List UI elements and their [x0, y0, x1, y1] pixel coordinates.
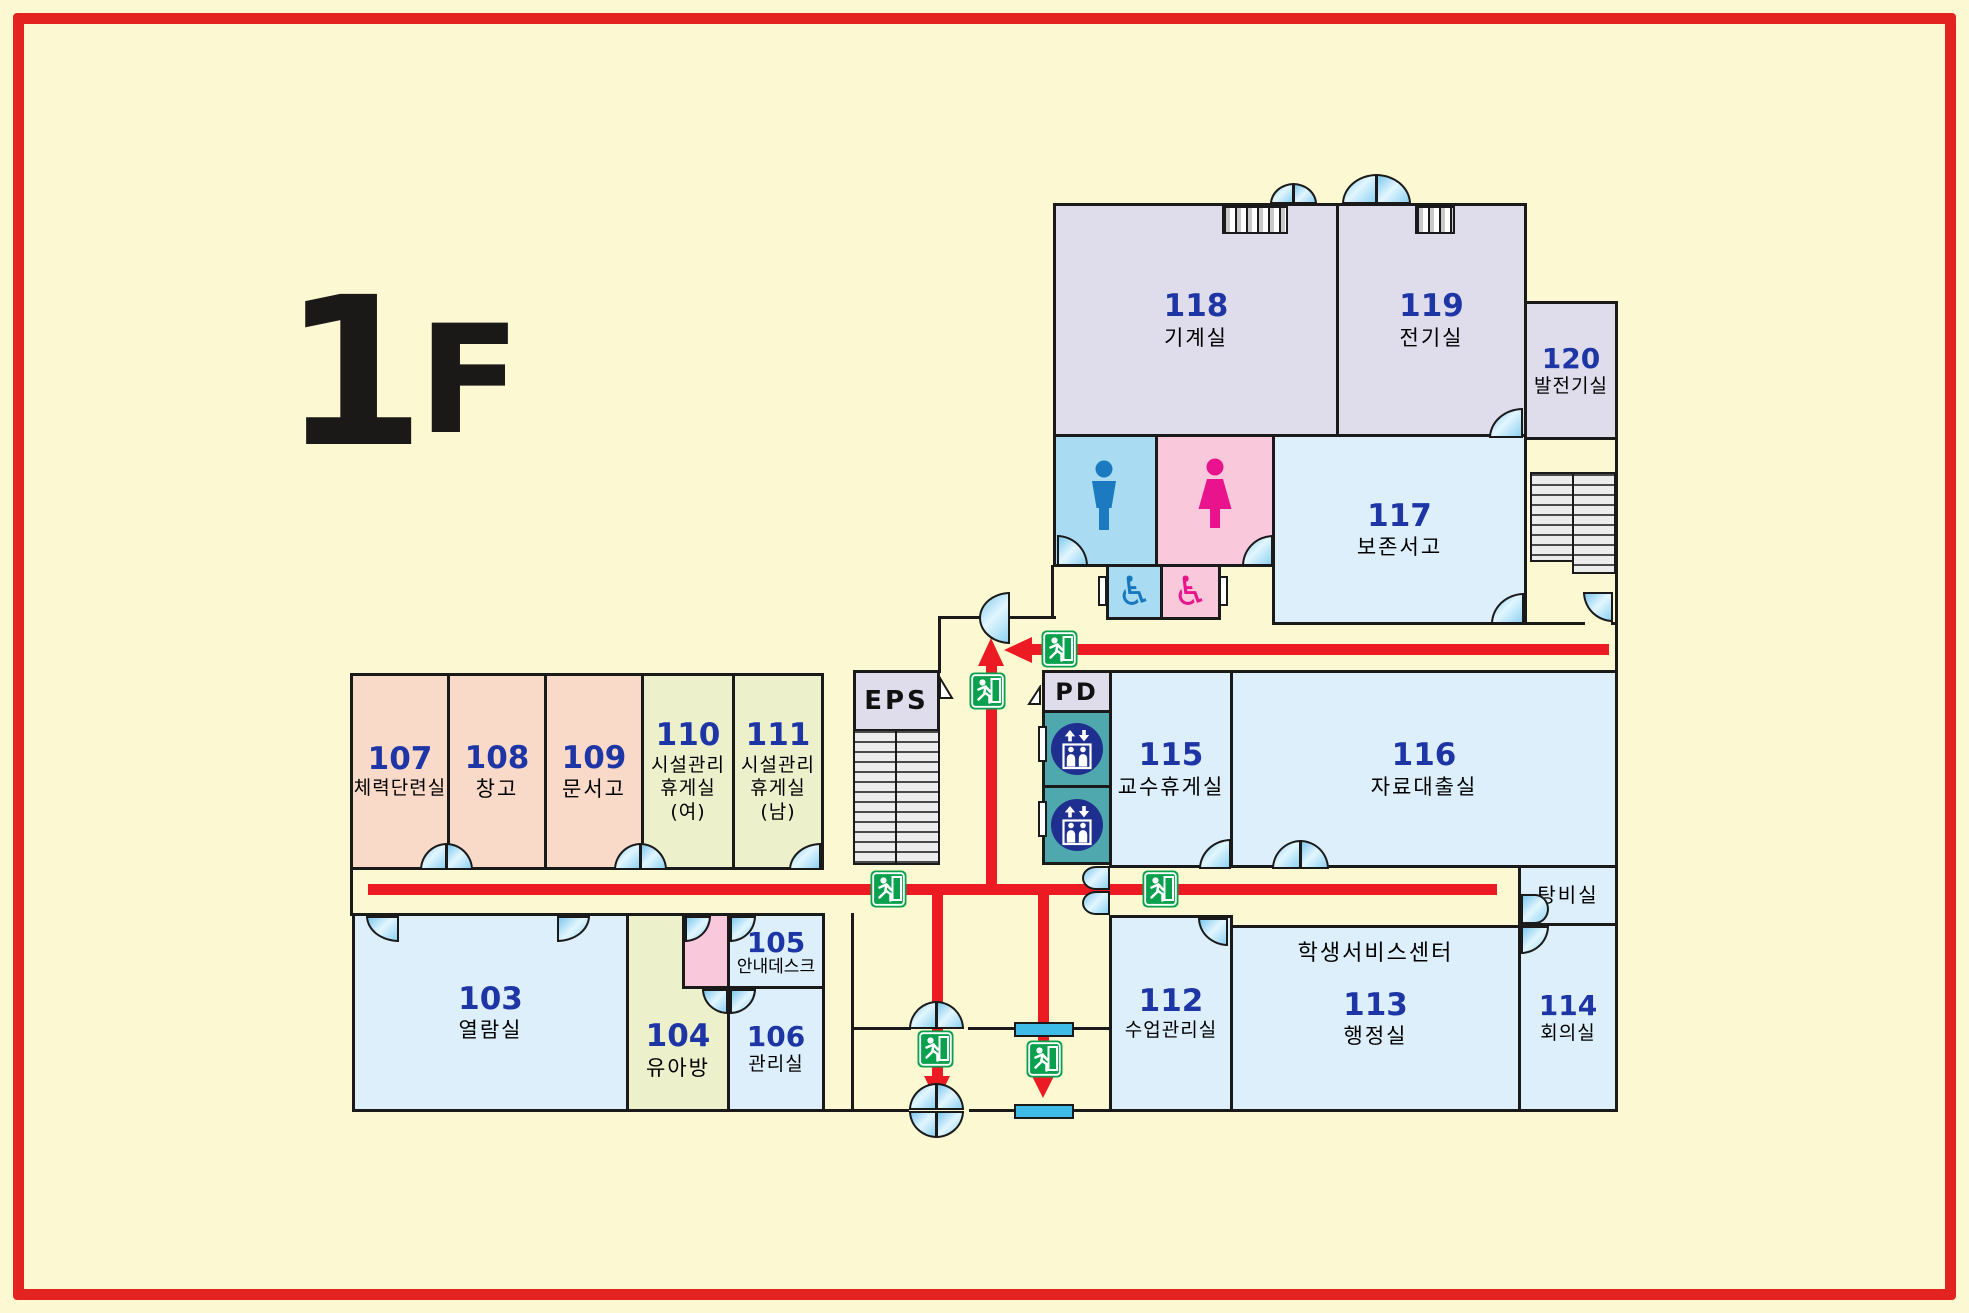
wall-segment — [851, 913, 854, 1112]
room-112-name: 수업관리실 — [1125, 1019, 1217, 1043]
exit-sign-icon — [870, 870, 907, 908]
room-114: 114 회의실 — [1518, 923, 1618, 1112]
exit-sign-icon — [1026, 1040, 1063, 1078]
room-110-name2: 휴게실(여) — [644, 777, 732, 825]
room-107-name: 체력단련실 — [354, 777, 446, 801]
wheelchair-icon-pink: ♿ — [1162, 566, 1219, 618]
door-leaf-triangle — [1026, 685, 1042, 706]
room-106-name: 관리실 — [748, 1053, 803, 1077]
floor-plan: 1 F 118 기계실 119 전기실 120 발전기실 117 보존서고 ♿ … — [0, 0, 1969, 1313]
room-113-number: 113 — [1343, 988, 1408, 1024]
room-109-name: 문서고 — [562, 776, 626, 802]
wall-segment — [851, 1027, 911, 1030]
wall-segment — [1070, 1109, 1112, 1112]
room-112-number: 112 — [1139, 984, 1204, 1020]
pd-label: PD — [1055, 678, 1099, 706]
room-108: 108 창고 — [447, 673, 547, 870]
room-108-number: 108 — [465, 741, 530, 777]
room-103-number: 103 — [458, 982, 523, 1018]
floor-letter: F — [418, 306, 520, 456]
wall-segment — [969, 1109, 1017, 1112]
room-103-name: 열람실 — [459, 1017, 523, 1043]
wall-segment — [823, 1109, 854, 1112]
room-117-number: 117 — [1367, 499, 1432, 535]
room-110-number: 110 — [656, 718, 721, 754]
room-111-name2: 휴게실(남) — [735, 777, 821, 825]
room-110-name: 시설관리 — [651, 754, 725, 778]
door-slit — [1038, 801, 1047, 837]
room-111-number: 111 — [746, 718, 811, 754]
wall-segment — [350, 868, 353, 916]
room-118: 118 기계실 — [1053, 203, 1339, 437]
eps-label: EPS — [864, 686, 929, 716]
floor-number: 1 — [282, 270, 425, 476]
door-slit — [1219, 576, 1228, 606]
room-120: 120 발전기실 — [1524, 301, 1618, 440]
room-109-number: 109 — [562, 741, 627, 777]
room-114-name: 회의실 — [1540, 1022, 1595, 1046]
vent-hatch-118 — [1222, 206, 1288, 234]
sliding-door — [1014, 1022, 1074, 1037]
room-119-number: 119 — [1399, 289, 1464, 325]
student-service-center-label: 학생서비스센터 — [1233, 940, 1518, 968]
room-120-number: 120 — [1542, 343, 1600, 375]
wall-segment — [1615, 434, 1618, 673]
exit-sign-icon — [969, 672, 1006, 710]
room-117: 117 보존서고 — [1272, 434, 1527, 625]
evac-arrow-top-line — [1032, 644, 1609, 655]
room-115-name: 교수휴게실 — [1118, 774, 1225, 800]
room-116-name: 자료대출실 — [1371, 774, 1478, 800]
room-110: 110 시설관리 휴게실(여) — [641, 673, 735, 870]
room-eps: EPS — [853, 670, 940, 732]
vent-hatch-119 — [1415, 206, 1455, 234]
room-111: 111 시설관리 휴게실(남) — [732, 673, 824, 870]
room-107: 107 체력단련실 — [350, 673, 450, 870]
room-118-number: 118 — [1164, 289, 1229, 325]
stairs-eps-right-run — [895, 729, 940, 865]
man-icon — [1082, 460, 1126, 532]
stairs-right-wing-right-run — [1572, 472, 1616, 574]
room-111-name: 시설관리 — [741, 754, 815, 778]
door-leaf-triangle — [938, 676, 954, 700]
room-114-number: 114 — [1539, 990, 1597, 1022]
woman-icon — [1192, 458, 1238, 532]
room-113: 학생서비스센터 113 행정실 — [1230, 925, 1521, 1112]
door-arc — [1521, 894, 1549, 924]
wall-segment — [1070, 1027, 1112, 1030]
room-119: 119 전기실 — [1336, 203, 1527, 437]
wall-segment — [1527, 622, 1585, 625]
stairs-eps-left-run — [853, 729, 898, 865]
room-115: 115 교수휴게실 — [1109, 670, 1233, 868]
wall-segment — [938, 616, 984, 619]
door-arc — [1082, 891, 1110, 915]
elevator-icon — [1050, 798, 1104, 852]
room-103: 103 열람실 — [352, 913, 629, 1112]
room-116-number: 116 — [1392, 738, 1457, 774]
room-112: 112 수업관리실 — [1109, 915, 1233, 1112]
wheelchair-icon-blue: ♿ — [1108, 566, 1161, 618]
room-pd: PD — [1042, 670, 1112, 713]
wall-segment — [851, 1109, 909, 1112]
exit-sign-icon — [1041, 630, 1078, 668]
room-106-number: 106 — [747, 1021, 805, 1053]
exit-sign-icon — [1142, 870, 1179, 908]
room-119-name: 전기실 — [1400, 325, 1464, 351]
door-arc — [1082, 866, 1110, 890]
wall-segment — [938, 616, 941, 673]
room-120-name: 발전기실 — [1534, 375, 1608, 399]
room-117-name: 보존서고 — [1357, 534, 1442, 560]
wall-segment — [968, 1027, 1017, 1030]
room-115-number: 115 — [1139, 738, 1204, 774]
wall-segment — [1051, 565, 1054, 619]
sliding-door — [1014, 1104, 1074, 1119]
door-slit — [1038, 726, 1047, 762]
room-118-name: 기계실 — [1164, 325, 1228, 351]
room-113-name: 행정실 — [1344, 1023, 1408, 1049]
room-105-number: 105 — [747, 928, 805, 957]
elevator-icon — [1050, 722, 1104, 776]
room-116: 116 자료대출실 — [1230, 670, 1618, 868]
wall-segment — [1010, 616, 1056, 619]
room-104-number: 104 — [646, 1019, 711, 1055]
exit-sign-icon — [917, 1030, 954, 1068]
room-107-number: 107 — [368, 742, 433, 778]
room-108-name: 창고 — [476, 776, 519, 802]
room-104-name: 유아방 — [646, 1055, 710, 1081]
room-105-name: 안내데스크 — [737, 957, 815, 978]
room-109: 109 문서고 — [544, 673, 644, 870]
door-slit — [1098, 576, 1107, 606]
stairs-right-wing-left-run — [1530, 472, 1575, 562]
